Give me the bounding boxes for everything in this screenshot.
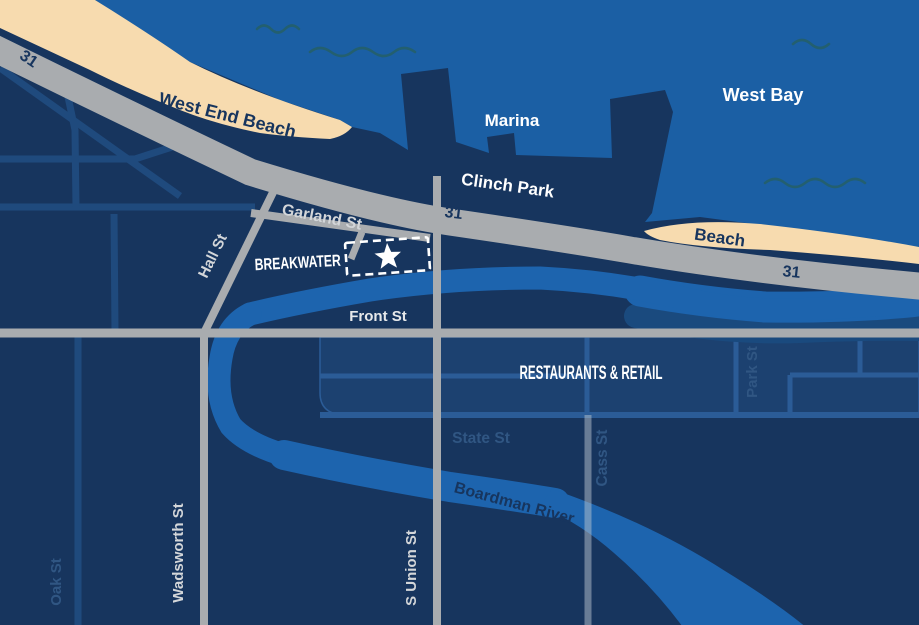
- restaurants-retail-label: RESTAURANTS & RETAIL: [520, 363, 663, 384]
- stylized-city-map: West End Beach Marina West Bay Clinch Pa…: [0, 0, 919, 625]
- wadsworth-street-label: Wadsworth St: [170, 503, 187, 602]
- oak-street-label: Oak St: [48, 558, 65, 606]
- west-bay-label: West Bay: [723, 85, 804, 105]
- s-union-street-label: S Union St: [403, 530, 420, 606]
- minor-street: [114, 214, 115, 331]
- highway-31-marker-east: 31: [782, 263, 802, 282]
- highway-31-marker-center: 31: [444, 204, 464, 223]
- state-street-label: State St: [452, 430, 510, 447]
- map-canvas: West End Beach Marina West Bay Clinch Pa…: [0, 0, 919, 625]
- marina-label: Marina: [485, 111, 540, 130]
- front-street-label: Front St: [349, 308, 407, 325]
- park-street-label: Park St: [744, 346, 761, 398]
- cass-street-label: Cass St: [594, 430, 611, 487]
